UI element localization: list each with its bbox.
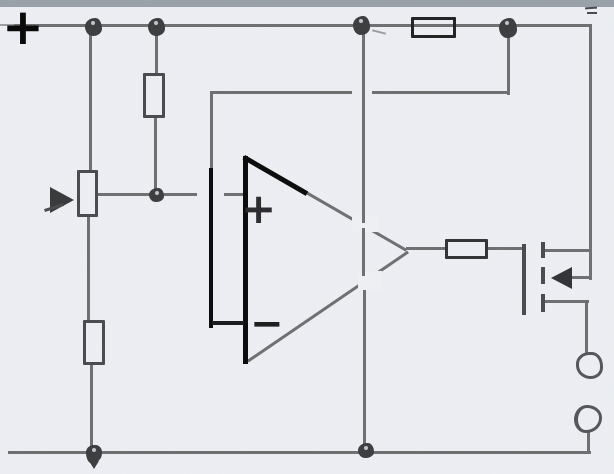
top-rail-scribble (372, 29, 386, 34)
supply-vertical-wire-lower (363, 290, 366, 453)
wiper-wire-left (97, 193, 197, 196)
positive-supply-plus-label: + (2, 2, 44, 52)
mosfet-gate-bar (522, 244, 526, 315)
opamp-output-wire (406, 247, 446, 250)
junction-dot-3 (353, 16, 370, 35)
potentiometer-body (77, 170, 98, 217)
inverting-input-wire (212, 321, 244, 325)
mosfet-channel-mid-bar (541, 267, 545, 284)
terminal2-stem-wire (587, 431, 590, 453)
r1-to-wiper-wire (154, 117, 157, 195)
source-drop-wire (585, 300, 588, 354)
resistor-r1 (143, 73, 165, 118)
mosfet-channel-bottom-bar (541, 294, 545, 312)
junction-dot-2 (148, 18, 165, 36)
junction-dot-6-tail (89, 461, 99, 469)
source-wire (543, 300, 589, 303)
opamp-inverting-label: − (250, 304, 284, 344)
junction-dot-7 (358, 443, 374, 458)
body-wire (569, 276, 591, 279)
mosfet-body-arrow-icon (551, 267, 572, 289)
left-drop-wire (89, 27, 92, 173)
supply-vertical-wire-inside (362, 228, 365, 276)
drain-wire (545, 249, 591, 252)
junction-dot-1 (85, 18, 102, 36)
feedback-horizontal-wire-right (372, 91, 509, 94)
r2-to-bottom-wire (90, 364, 93, 453)
output-terminal-top-circle (576, 352, 603, 379)
whiteout-top-edge-crossing (352, 215, 378, 232)
pen-artifact-marks (583, 6, 599, 18)
supply-vertical-wire-upper (362, 25, 365, 223)
resistor-r2 (83, 320, 105, 365)
junction-dot-5 (149, 188, 164, 202)
opamp-noninverting-label: + (241, 188, 276, 230)
right-rail-wire (589, 24, 592, 280)
pot-to-r2-wire (87, 215, 90, 321)
resistor-r4-gate (445, 239, 488, 259)
junction-dot-4 (499, 18, 517, 38)
mosfet-channel-top-bar (541, 242, 545, 258)
output-terminal-bottom-circle (574, 405, 602, 433)
resistor-r3-shunt (411, 17, 456, 38)
feedback-vertical-wire-pencil (210, 91, 213, 171)
feedback-vertical-wire-ink (209, 168, 213, 328)
scan-edge-bar (0, 0, 614, 7)
schematic-canvas: + − + (0, 0, 614, 474)
r4-to-gate-wire (487, 247, 524, 250)
feedback-horizontal-wire-left (211, 91, 352, 94)
